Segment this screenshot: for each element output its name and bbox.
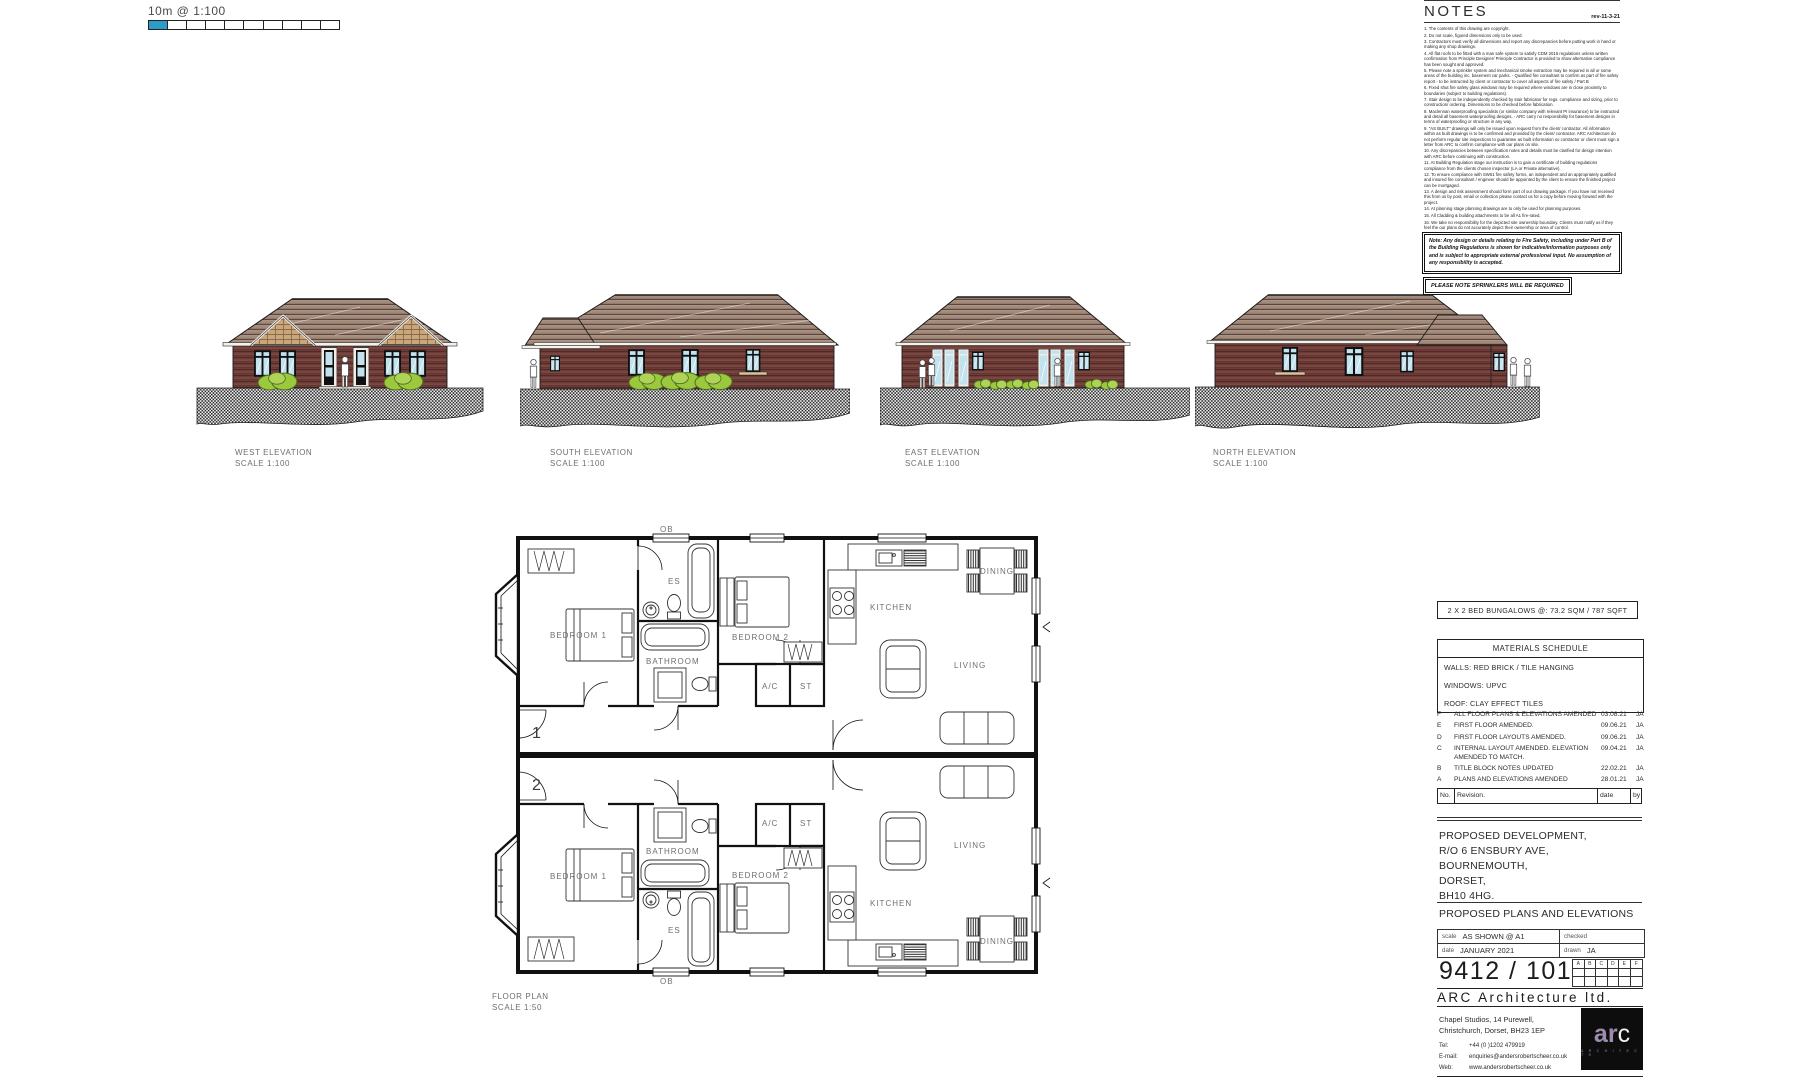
west-elevation-drawing: [195, 285, 485, 465]
scalebar-label: 10m @ 1:100: [148, 4, 226, 18]
kitchen-label: KITCHEN: [870, 603, 912, 612]
patio-door: [1038, 349, 1049, 387]
ob-label: OB: [660, 977, 674, 986]
firm-details: Chapel Studios, 14 Purewell, Christchurc…: [1437, 1008, 1643, 1077]
unit-number: 1: [532, 725, 541, 742]
window: [1345, 347, 1364, 376]
fascia: [534, 343, 836, 346]
south-elevation-label: SOUTH ELEVATION SCALE 1:100: [550, 448, 633, 470]
floor-plan-label: FLOOR PLAN SCALE 1:50: [492, 992, 549, 1014]
materials-title: MATERIALS SCHEDULE: [1438, 640, 1643, 658]
ac-label: A/C: [762, 819, 778, 828]
revision-row: A PLANS AND ELEVATIONS AMENDED 28.01.21 …: [1437, 776, 1642, 784]
front-door-2: [353, 348, 369, 388]
living-label: LIVING: [954, 841, 986, 850]
drawing-sheet: 10m @ 1:100 NOTES rev-11-3-21 1. The con…: [0, 0, 1800, 1080]
floor-plan-svg: OB BEDROOM 1 ES BATHROOM BEDROOM 2 A/C S…: [488, 524, 1063, 986]
bungalow-rear: [896, 297, 1130, 389]
materials-row: WINDOWS: UPVC: [1438, 676, 1643, 694]
ensuite-label: ES: [668, 926, 681, 935]
unit-1-shapes: [496, 534, 1050, 754]
materials-row: WALLS: RED BRICK / TILE HANGING: [1438, 658, 1643, 676]
store-label: ST: [800, 819, 812, 828]
ac-label: A/C: [762, 682, 778, 691]
ground-hatch: [880, 388, 1190, 426]
patio-door: [1064, 349, 1075, 387]
bungalow-front: [223, 299, 457, 390]
patio-door: [958, 349, 969, 387]
bedroom1-label: BEDROOM 1: [550, 872, 607, 881]
store-label: ST: [800, 682, 812, 691]
drawn-cell: drawn JA: [1560, 944, 1644, 957]
bedroom2-label: BEDROOM 2: [732, 871, 789, 880]
window-sill: [1275, 372, 1305, 375]
dining-label: DINING: [980, 937, 1014, 946]
window-sill: [739, 372, 767, 375]
east-elevation-label: EAST ELEVATION SCALE 1:100: [905, 448, 980, 470]
door-step: [319, 387, 371, 390]
front-door-1: [321, 348, 337, 388]
bedroom1-label: BEDROOM 1: [550, 631, 607, 640]
materials-schedule: MATERIALS SCHEDULE WALLS: RED BRICK / TI…: [1437, 639, 1644, 713]
bathroom-label: BATHROOM: [646, 657, 700, 666]
bungalow-side: [522, 295, 838, 390]
drawing-number: 9412 / 101: [1439, 957, 1572, 986]
drawing-number-row: 9412 / 101 A B C D E F: [1437, 957, 1643, 987]
window: [384, 350, 401, 376]
unit-2-shapes: [496, 756, 1050, 976]
bedroom2-label: BEDROOM 2: [732, 633, 789, 642]
window: [1078, 352, 1090, 371]
east-elevation-drawing: [880, 285, 1190, 465]
scalebar-cell: [149, 21, 168, 29]
bathroom-label: BATHROOM: [646, 847, 700, 856]
window: [279, 350, 296, 376]
arc-logo: arc A R C H I T E C T S: [1581, 1008, 1643, 1070]
area-banner: 2 X 2 BED BUNGALOWS @: 73.2 SQM / 787 SQ…: [1437, 601, 1638, 619]
materials-row: ROOF: CLAY EFFECT TILES: [1438, 694, 1643, 712]
ob-label: OB: [660, 525, 674, 534]
revision-row: B TITLE BLOCK NOTES UPDATED 22.02.21 JA: [1437, 765, 1642, 773]
revision-table-header: No. Revision. date by: [1437, 788, 1642, 804]
arc-logo-subtext: A R C H I T E C T S: [1581, 1049, 1643, 1057]
south-elevation-drawing: [520, 285, 850, 465]
ground-hatch: [520, 389, 850, 427]
scalebar: [148, 20, 340, 30]
kitchen-label: KITCHEN: [870, 899, 912, 908]
window: [681, 349, 698, 376]
title-block: 2 X 2 BED BUNGALOWS @: 73.2 SQM / 787 SQ…: [1437, 0, 1644, 1080]
ground-hatch: [197, 388, 483, 425]
person-figure: [530, 359, 536, 387]
living-label: LIVING: [954, 661, 986, 670]
divider: [1437, 902, 1642, 903]
window: [628, 349, 645, 375]
revision-letter-grid: A B C D E F: [1572, 959, 1643, 987]
checked-cell: checked: [1560, 930, 1644, 943]
revision-table: F ALL FLOOR PLANS & ELEVATIONS AMENDED 0…: [1437, 711, 1642, 804]
revision-row: C INTERNAL LAYOUT AMENDED. ELEVATION AME…: [1437, 745, 1642, 761]
window: [254, 350, 271, 376]
firm-name: ARC Architecture ltd.: [1437, 988, 1643, 1007]
ensuite-label: ES: [668, 577, 681, 586]
project-address: PROPOSED DEVELOPMENT, R/O 6 ENSBURY AVE,…: [1437, 817, 1642, 912]
date-cell: date JANUARY 2021: [1438, 944, 1560, 957]
north-elevation-label: NORTH ELEVATION SCALE 1:100: [1213, 448, 1296, 470]
window: [1400, 351, 1414, 373]
unit-number: 2: [532, 777, 541, 794]
dining-label: DINING: [980, 567, 1014, 576]
west-elevation-label: WEST ELEVATION SCALE 1:100: [235, 448, 312, 470]
fascia: [896, 343, 1130, 346]
drawing-title: PROPOSED PLANS AND ELEVATIONS: [1439, 908, 1642, 920]
window: [746, 349, 761, 372]
window: [1282, 347, 1298, 372]
revision-row: E FIRST FLOOR AMENDED. 09.06.21 JA: [1437, 722, 1642, 730]
scale-cell: scale AS SHOWN @ A1: [1438, 930, 1560, 943]
window: [550, 356, 560, 372]
meta-grid: scale AS SHOWN @ A1 checked date JANUARY…: [1437, 929, 1645, 958]
revision-row: D FIRST FLOOR LAYOUTS AMENDED. 09.06.21 …: [1437, 734, 1642, 742]
revision-row: F ALL FLOOR PLANS & ELEVATIONS AMENDED 0…: [1437, 711, 1642, 719]
patio-door: [944, 349, 955, 387]
window: [972, 352, 984, 371]
